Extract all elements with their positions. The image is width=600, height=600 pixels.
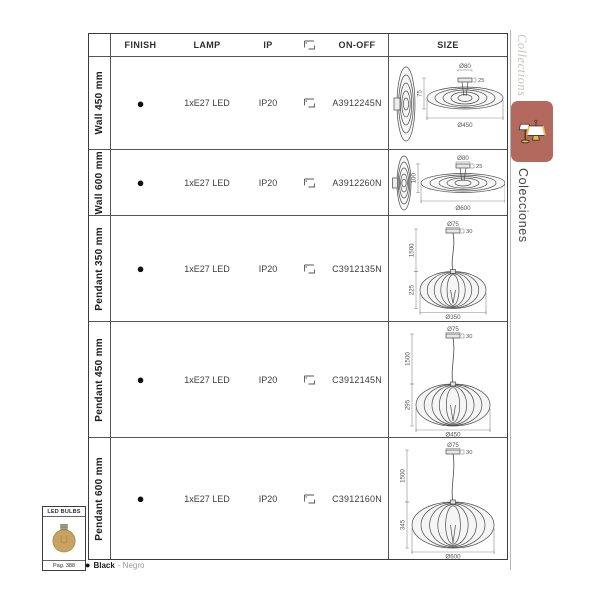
size-diagram: Ø75301500225Ø350 [391,218,505,320]
catalog-page: FINISH LAMP IP ON-OFF SIZE Wall 450 mm ●… [0,0,600,600]
product-code: C3912145N [326,322,388,437]
mount-icon [303,263,316,275]
mount-icon [303,97,316,109]
black-finish-dot: ● [137,262,145,275]
svg-text:30: 30 [466,229,472,235]
table-row: Pendant 600 mm ● 1xE27 LED IP20 C3912160… [89,437,507,559]
table-header-row: FINISH LAMP IP ON-OFF SIZE [89,34,507,56]
ip-value: IP20 [244,150,292,215]
header-ip: IP [244,34,292,56]
row-label-cell: Wall 450 mm [89,57,111,149]
row-label-cell: Pendant 350 mm [89,216,111,321]
finish-cell: ● [111,322,170,437]
table-row: Pendant 450 mm ● 1xE27 LED IP20 C3912145… [89,321,507,437]
svg-text:25: 25 [478,78,484,84]
ip-value: IP20 [244,322,292,437]
row-label: Wall 450 mm [94,71,105,135]
size-diagram: Ø802575Ø450 [391,58,505,148]
mount-cell [292,216,326,321]
row-label: Pendant 600 mm [94,457,105,541]
product-code: A3912245N [326,57,388,149]
black-finish-dot: ● [137,97,145,110]
ip-value: IP20 [244,216,292,321]
table-row: Wall 450 mm ● 1xE27 LED IP20 A3912245N Ø… [89,56,507,149]
svg-text:Ø450: Ø450 [457,122,473,129]
header-lamp: LAMP [170,34,244,56]
finish-cell: ● [111,57,170,149]
mount-icon [303,39,316,51]
mount-icon [303,493,316,505]
collections-tab[interactable] [511,101,553,162]
collections-label-en: Collections [514,34,529,96]
legend-black: Black [93,561,114,570]
svg-text:Ø600: Ø600 [445,553,461,559]
row-label: Wall 600 mm [94,151,105,215]
product-code: A3912260N [326,150,388,215]
size-cell: Ø75301500225Ø350 [388,216,507,321]
lamp-value: 1xE27 LED [170,57,244,149]
svg-text:Ø75: Ø75 [447,442,459,449]
mount-cell [292,438,326,559]
collections-label-es: Colecciones [516,168,530,243]
header-mount-cell [292,34,326,56]
svg-text:Ø75: Ø75 [447,326,459,333]
svg-text:1500: 1500 [405,351,412,365]
legend-dot: ● [85,561,90,570]
header-label-cell [89,34,111,56]
lamp-value: 1xE27 LED [170,438,244,559]
svg-text:225: 225 [409,284,416,295]
finish-cell: ● [111,150,170,215]
product-table: FINISH LAMP IP ON-OFF SIZE Wall 450 mm ●… [88,33,508,560]
size-diagram: Ø75301500345Ø600 [391,439,505,559]
led-bulb-image [43,517,85,560]
table-row: Wall 600 mm ● 1xE27 LED IP20 A3912260N Ø… [89,149,507,215]
svg-text:345: 345 [400,519,407,530]
row-label-cell: Pendant 450 mm [89,322,111,437]
header-size: SIZE [388,34,507,56]
size-diagram: Ø8025100Ø600 [391,152,505,214]
ip-value: IP20 [244,438,292,559]
size-diagram: Ø75301500295Ø450 [391,323,505,437]
svg-text:1500: 1500 [409,242,416,256]
lamp-value: 1xE27 LED [170,322,244,437]
finish-cell: ● [111,438,170,559]
finish-legend: ● Black - Negro [85,561,144,570]
svg-text:75: 75 [417,90,424,97]
table-row: Pendant 350 mm ● 1xE27 LED IP20 C3912135… [89,215,507,321]
svg-text:Ø600: Ø600 [455,205,471,212]
row-label-cell: Wall 600 mm [89,150,111,215]
mount-icon [303,374,316,386]
row-label: Pendant 450 mm [94,338,105,422]
size-cell: Ø75301500295Ø450 [388,322,507,437]
header-finish: FINISH [111,34,170,56]
black-finish-dot: ● [137,492,145,505]
mount-icon [303,177,316,189]
product-code: C3912160N [326,438,388,559]
led-bulbs-title: LED BULBS [43,507,85,517]
lamp-value: 1xE27 LED [170,150,244,215]
finish-cell: ● [111,216,170,321]
black-finish-dot: ● [137,373,145,386]
svg-text:25: 25 [476,164,482,170]
legend-negro: - Negro [118,561,145,570]
led-bulbs-page-ref: Pag. 388 [43,560,85,570]
led-bulb-icon [51,522,77,555]
row-label-cell: Pendant 600 mm [89,438,111,559]
svg-text:Ø450: Ø450 [445,431,461,437]
svg-text:100: 100 [411,172,418,183]
svg-text:1500: 1500 [400,468,407,482]
header-onoff: ON-OFF [326,34,388,56]
svg-text:Ø350: Ø350 [445,313,461,319]
row-label: Pendant 350 mm [94,227,105,311]
svg-text:30: 30 [466,450,472,456]
mount-cell [292,57,326,149]
mount-cell [292,150,326,215]
led-bulbs-box[interactable]: LED BULBS Pag. 388 [42,506,86,571]
table-and-floor-lamp-icon [517,117,548,147]
black-finish-dot: ● [137,176,145,189]
svg-text:Ø80: Ø80 [459,63,471,70]
size-cell: Ø75301500345Ø600 [388,438,507,559]
lamp-value: 1xE27 LED [170,216,244,321]
product-code: C3912135N [326,216,388,321]
svg-text:30: 30 [466,334,472,340]
svg-text:Ø75: Ø75 [447,221,459,228]
ip-value: IP20 [244,57,292,149]
mount-cell [292,322,326,437]
size-cell: Ø802575Ø450 [388,57,507,149]
size-cell: Ø8025100Ø600 [388,150,507,215]
svg-text:Ø80: Ø80 [457,155,469,162]
bulb-globe [53,530,75,552]
svg-text:295: 295 [405,399,412,410]
